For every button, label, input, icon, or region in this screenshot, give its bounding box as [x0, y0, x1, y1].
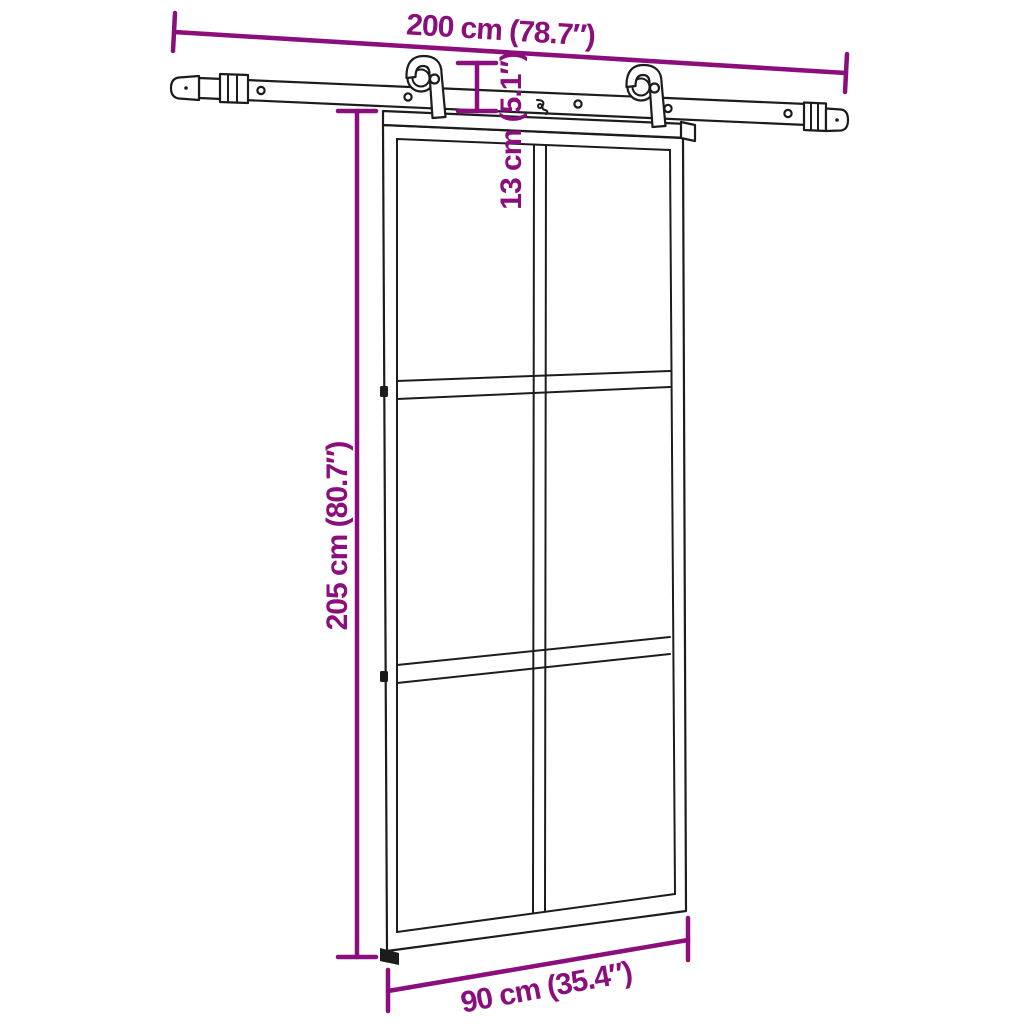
dimension-door-height: 205 cm (80.7″) [321, 111, 376, 957]
dimension-label-door-height: 205 cm (80.7″) [321, 442, 354, 631]
product-dimension-diagram: 200 cm (78.7″) 13 cm (5.1″) 205 cm (80.7… [0, 0, 1024, 1024]
door-center-mullion-line [545, 146, 546, 911]
rail-end-cap-right-dot [835, 118, 839, 122]
rail-mount-hole [664, 105, 671, 112]
dimension-tick [173, 13, 175, 51]
door-top-cap-end-lip [681, 122, 695, 141]
door-divider-end-cap [380, 671, 388, 682]
rail-mount-hole [404, 93, 411, 100]
door-center-mullion-line [533, 145, 534, 913]
rail-stop-collar-right [804, 103, 826, 132]
rail-mount-hole [257, 87, 264, 94]
rail-mount-hole [784, 110, 791, 117]
dimension-tick [845, 54, 847, 92]
diagram-canvas: 200 cm (78.7″) 13 cm (5.1″) 205 cm (80.7… [0, 0, 1024, 1024]
rail-end-cap-left-dot [184, 86, 188, 90]
glass-door [380, 111, 695, 965]
hanger-bolt [650, 84, 659, 93]
dimension-label-hanger-drop: 13 cm (5.1″) [495, 52, 528, 209]
door-divider-end-cap [380, 386, 388, 397]
rail-stop-collar-left [220, 74, 248, 103]
rail-mount-hole [574, 100, 581, 107]
hanger-bolt [430, 75, 439, 84]
